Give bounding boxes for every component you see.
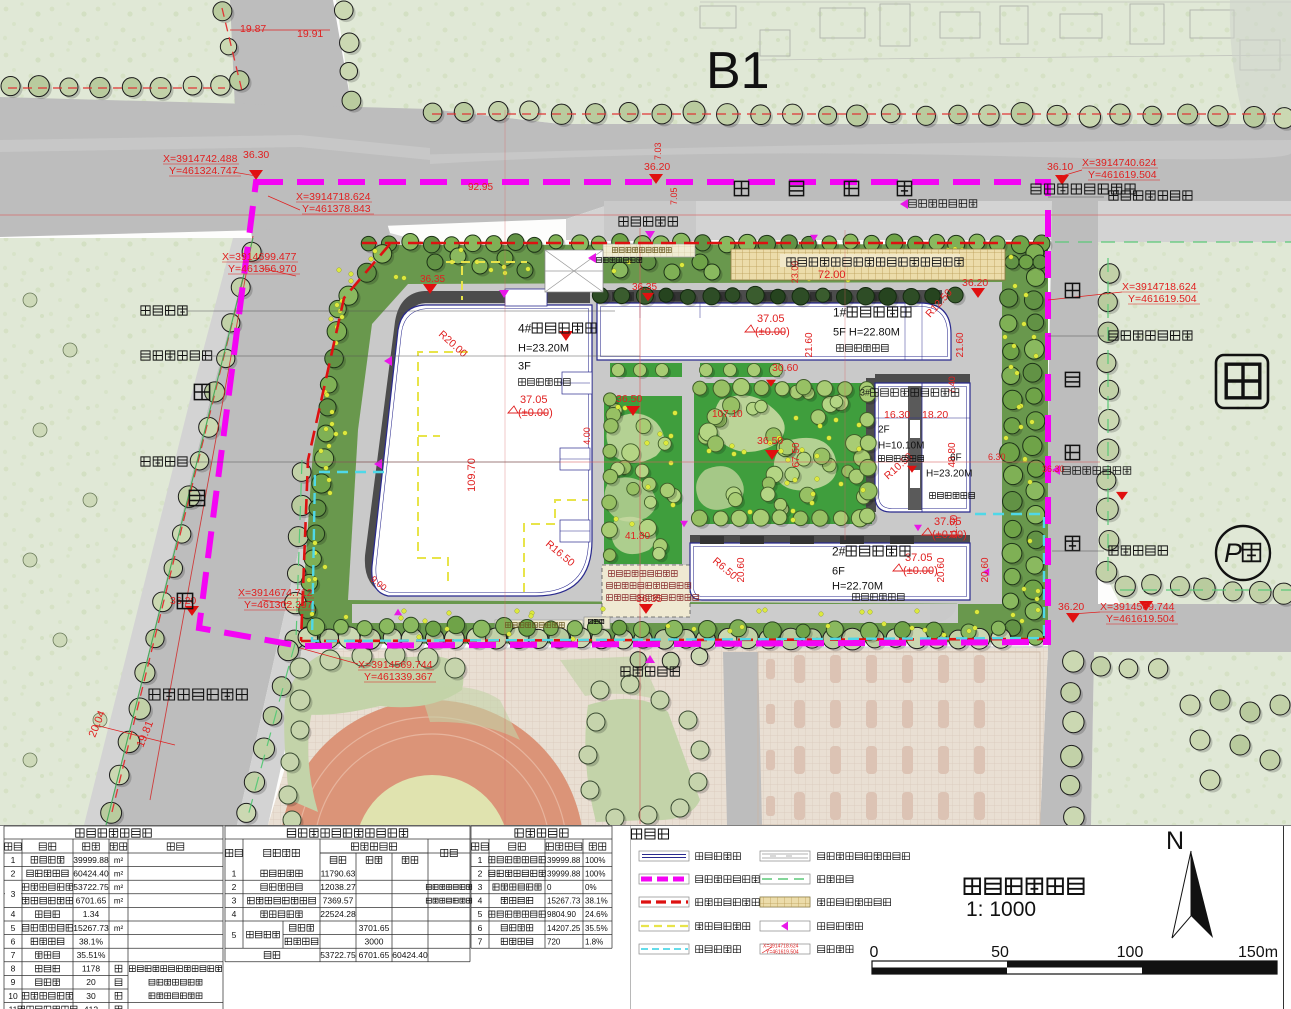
svg-text:2: 2 [11, 868, 16, 878]
svg-text:8: 8 [11, 964, 16, 974]
svg-text:38.1%: 38.1% [585, 897, 608, 906]
svg-text:1: 1000: 1: 1000 [966, 898, 1036, 921]
svg-text:38.1%: 38.1% [79, 936, 104, 946]
svg-text:39999.88: 39999.88 [547, 856, 581, 865]
svg-text:1: 1 [478, 855, 483, 865]
svg-text:X=3914674.712: X=3914674.712 [238, 587, 313, 599]
svg-text:2: 2 [478, 868, 483, 878]
svg-text:Y=461619.504: Y=461619.504 [1106, 613, 1175, 625]
svg-text:0: 0 [547, 883, 552, 892]
svg-text:B1: B1 [706, 42, 770, 100]
svg-text:m²: m² [114, 897, 124, 906]
svg-text:21.60: 21.60 [804, 332, 815, 357]
svg-text:X=3914569.744: X=3914569.744 [1100, 601, 1175, 613]
svg-text:3#: 3# [860, 388, 870, 398]
svg-text:30.60: 30.60 [772, 362, 798, 374]
svg-text:11: 11 [9, 1004, 18, 1009]
svg-text:6701.65: 6701.65 [76, 896, 107, 906]
svg-text:N: N [1166, 827, 1184, 855]
svg-text:20: 20 [86, 977, 96, 987]
svg-text:15267.73: 15267.73 [547, 897, 581, 906]
svg-text:39999.88: 39999.88 [547, 869, 581, 878]
svg-text:92.95: 92.95 [468, 182, 493, 193]
svg-text:4: 4 [232, 909, 237, 919]
svg-text:4#: 4# [518, 321, 532, 335]
svg-text:100: 100 [1117, 944, 1144, 961]
svg-text:Y=461619.504: Y=461619.504 [1128, 293, 1197, 305]
svg-text:11790.63: 11790.63 [321, 868, 356, 878]
svg-text:36.30: 36.30 [243, 149, 269, 161]
svg-text:35.5%: 35.5% [585, 924, 608, 933]
svg-text:0%: 0% [585, 883, 597, 892]
svg-text:109.70: 109.70 [466, 458, 478, 492]
svg-text:m²: m² [114, 856, 124, 865]
svg-text:6: 6 [11, 936, 16, 946]
svg-text:37.05: 37.05 [757, 313, 785, 325]
svg-text:7: 7 [478, 936, 483, 946]
svg-text:14207.25: 14207.25 [547, 924, 581, 933]
svg-text:100%: 100% [585, 869, 605, 878]
svg-text:3: 3 [11, 889, 16, 899]
svg-text:5F H=22.80M: 5F H=22.80M [833, 327, 900, 339]
svg-text:50: 50 [991, 944, 1009, 961]
svg-text:4.00: 4.00 [582, 427, 592, 445]
svg-text:3701.65: 3701.65 [359, 923, 390, 933]
svg-text:21.60: 21.60 [955, 332, 966, 357]
svg-text:X=3914718.624: X=3914718.624 [296, 191, 371, 203]
svg-text:m²: m² [114, 883, 124, 892]
svg-text:7369.57: 7369.57 [323, 896, 354, 906]
svg-text:72.00: 72.00 [818, 269, 846, 281]
svg-text:6F: 6F [832, 566, 845, 578]
svg-text:Y=461619.504: Y=461619.504 [766, 950, 799, 956]
svg-text:100%: 100% [585, 856, 605, 865]
svg-text:36.35: 36.35 [632, 282, 657, 293]
svg-text:19.87: 19.87 [240, 23, 266, 35]
svg-text:60424.40: 60424.40 [73, 868, 109, 878]
svg-text:37.05: 37.05 [520, 394, 548, 406]
svg-text:P: P [1224, 538, 1242, 568]
svg-text:36.50: 36.50 [616, 393, 642, 405]
svg-text:7.05: 7.05 [669, 187, 679, 205]
svg-text:53722.75: 53722.75 [320, 950, 356, 960]
svg-text:H=10.10M: H=10.10M [878, 441, 924, 452]
svg-text:5: 5 [478, 909, 483, 919]
svg-text:H=23.20M: H=23.20M [926, 469, 972, 480]
svg-text:30: 30 [86, 991, 96, 1001]
svg-text:412: 412 [84, 1004, 98, 1009]
svg-text:m²: m² [114, 869, 124, 878]
svg-text:X=3914742.488: X=3914742.488 [163, 153, 238, 165]
svg-text:1.8%: 1.8% [585, 937, 603, 946]
svg-text:36.50: 36.50 [757, 435, 783, 447]
svg-text:m²: m² [114, 924, 124, 933]
svg-text:Y=461302.397: Y=461302.397 [244, 599, 313, 611]
svg-text:X=3914740.624: X=3914740.624 [1082, 157, 1157, 169]
svg-text:16.30: 16.30 [884, 409, 910, 421]
svg-text:67.50: 67.50 [791, 442, 802, 467]
svg-text:1178: 1178 [82, 964, 101, 974]
svg-text:2: 2 [232, 882, 237, 892]
svg-text:6: 6 [478, 923, 483, 933]
svg-text:24.6%: 24.6% [585, 910, 608, 919]
svg-text:36.20: 36.20 [962, 277, 988, 289]
svg-text:2F: 2F [878, 425, 890, 436]
svg-text:18.20: 18.20 [922, 409, 948, 421]
svg-text:3: 3 [478, 882, 483, 892]
svg-text:1: 1 [11, 855, 16, 865]
svg-text:60424.40: 60424.40 [392, 950, 428, 960]
svg-text:5: 5 [11, 923, 16, 933]
svg-text:10: 10 [8, 991, 18, 1001]
svg-text:H=22.70M: H=22.70M [832, 581, 883, 593]
svg-text:37.05: 37.05 [934, 516, 962, 528]
svg-text:37.05: 37.05 [905, 552, 933, 564]
svg-text:1#: 1# [833, 305, 847, 319]
svg-text:Y=461378.843: Y=461378.843 [302, 203, 371, 215]
svg-text:3F: 3F [518, 361, 531, 373]
svg-text:6F: 6F [950, 453, 962, 464]
svg-text:9: 9 [11, 977, 16, 987]
svg-text:15267.73: 15267.73 [73, 923, 109, 933]
svg-text:36.10: 36.10 [1047, 161, 1073, 173]
svg-text:0: 0 [870, 944, 879, 961]
svg-text:20.60: 20.60 [736, 557, 747, 582]
svg-text:Y=461339.367: Y=461339.367 [364, 671, 433, 683]
svg-text:36.20: 36.20 [644, 161, 670, 173]
svg-text:X=3914569.744: X=3914569.744 [358, 659, 433, 671]
svg-text:2#: 2# [832, 544, 846, 558]
svg-text:36.35: 36.35 [420, 274, 445, 285]
svg-text:20.60: 20.60 [980, 557, 991, 582]
svg-text:9804.90: 9804.90 [547, 910, 576, 919]
svg-text:53722.75: 53722.75 [73, 882, 109, 892]
svg-text:39999.88: 39999.88 [73, 855, 109, 865]
svg-text:6.30: 6.30 [988, 452, 1006, 462]
svg-text:150m: 150m [1238, 944, 1278, 961]
svg-text:4: 4 [11, 909, 16, 919]
svg-text:36.20: 36.20 [1058, 601, 1084, 613]
svg-text:107.10: 107.10 [712, 409, 743, 420]
svg-text:Y=461356.970: Y=461356.970 [228, 263, 297, 275]
svg-text:7.03: 7.03 [653, 142, 663, 160]
svg-text:3: 3 [232, 896, 237, 906]
svg-text:35.51%: 35.51% [77, 950, 106, 960]
svg-text:X=3914699.477: X=3914699.477 [222, 251, 297, 263]
svg-text:7: 7 [11, 950, 16, 960]
svg-text:1.34: 1.34 [83, 909, 100, 919]
svg-text:4: 4 [478, 896, 483, 906]
svg-text:720: 720 [547, 937, 561, 946]
svg-text:3000: 3000 [365, 936, 384, 946]
svg-text:36.30: 36.30 [1042, 464, 1065, 474]
svg-text:41.80: 41.80 [625, 531, 650, 542]
svg-text:Y=461619.504: Y=461619.504 [1088, 169, 1157, 181]
svg-text:1: 1 [232, 868, 237, 878]
svg-text:6701.65: 6701.65 [359, 950, 390, 960]
svg-text:Y=461324.747: Y=461324.747 [169, 165, 238, 177]
svg-text:12038.27: 12038.27 [320, 882, 356, 892]
svg-text:5: 5 [232, 930, 237, 940]
svg-text:22524.28: 22524.28 [320, 909, 356, 919]
svg-text:X=3914718.624: X=3914718.624 [1122, 281, 1197, 293]
svg-text:H=23.20M: H=23.20M [518, 343, 569, 355]
